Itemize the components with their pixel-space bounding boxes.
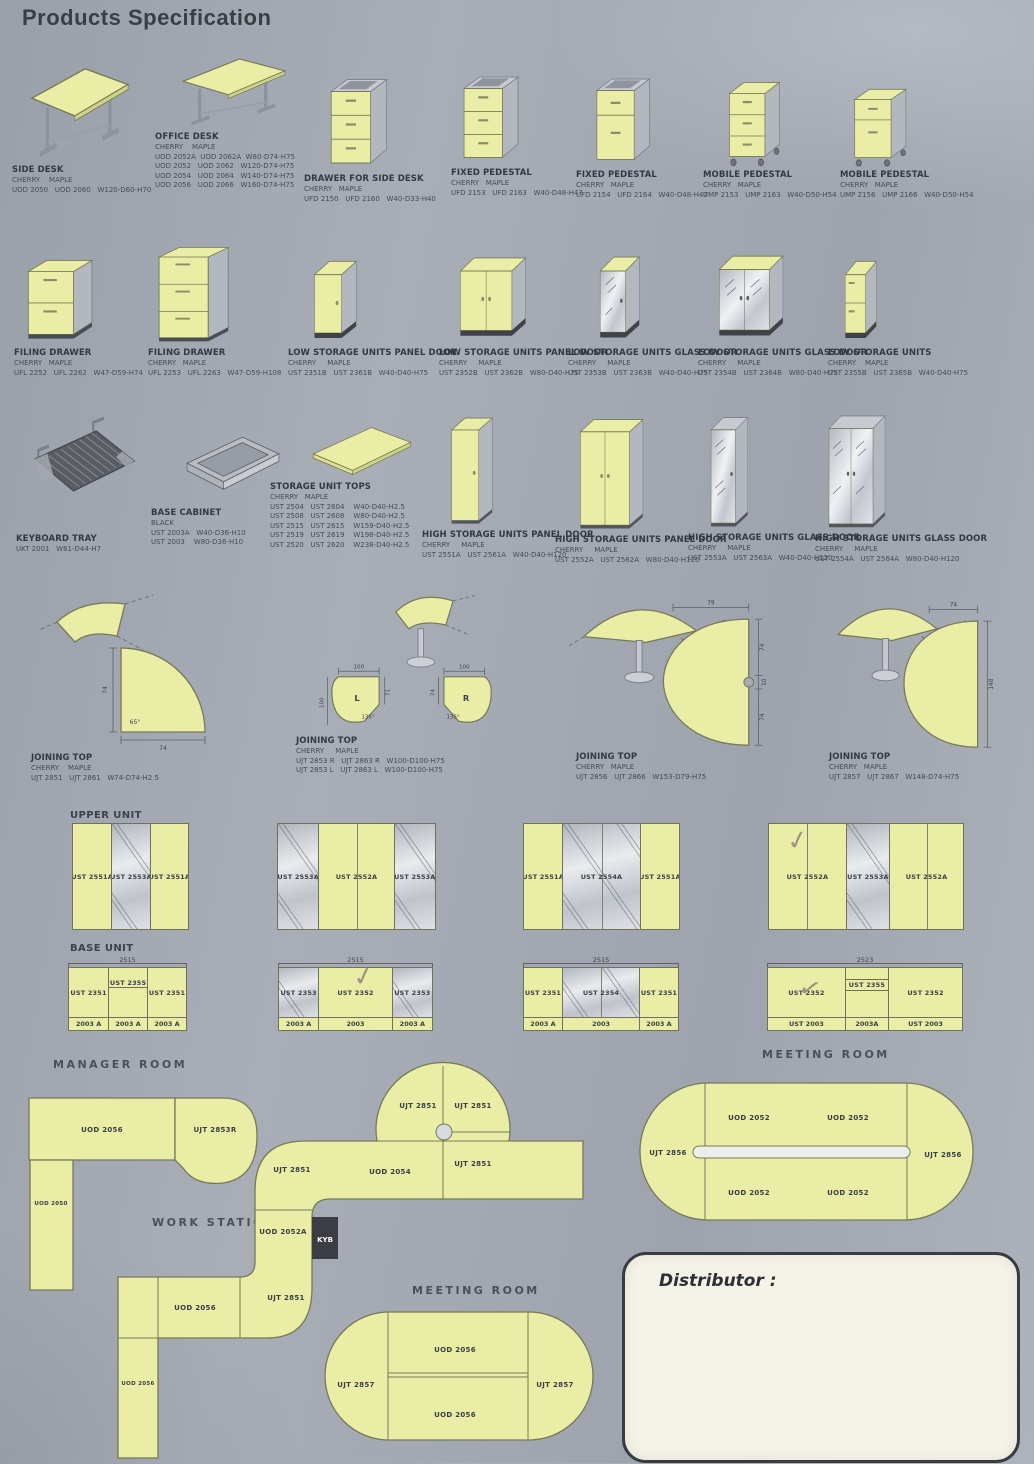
low-storage-glass-door-illustration <box>596 243 654 348</box>
desk-label: UOD 2052 <box>827 1114 869 1122</box>
handwritten-checkmark: ✓ <box>795 972 823 1006</box>
high-storage-panel-door-illustration <box>446 403 508 530</box>
dim-label: 100 <box>459 664 470 670</box>
product-name: KEYBOARD TRAY <box>16 534 166 545</box>
base-cabinet-door: UST 2351 <box>148 968 186 1017</box>
cabinet-glass-double-door: UST 2554A <box>563 824 641 929</box>
product-card-storage-unit-tops: STORAGE UNIT TOPS CHERRY MAPLE UST 2504 … <box>270 416 422 550</box>
product-finishes: CHERRY MAPLE <box>576 181 696 191</box>
product-codes: UST 2354B UST 2364B W80-D40-H75 <box>698 369 846 379</box>
joining-top-label: UJT 2856 <box>924 1151 961 1159</box>
product-name: FILING DRAWER <box>14 348 154 359</box>
handwritten-checkmark: ✓ <box>785 824 813 858</box>
product-card-fixed-pedestal-2: FIXED PEDESTAL CHERRY MAPLE UFD 2154 UFD… <box>576 64 696 200</box>
meeting-room-2-layout: UJT 2857 UOD 2056 UOD 2056 UJT 2857 <box>320 1300 600 1455</box>
joining-top-label: UJT 2851 <box>454 1102 491 1110</box>
desk-label: UOD 2052 <box>728 1189 770 1197</box>
product-card-mobile-pedestal-2: MOBILE PEDESTAL CHERRY MAPLE UMP 2156 UM… <box>840 76 962 200</box>
plinth-label: 2003 <box>563 1018 640 1030</box>
dim-label: 74 <box>431 689 437 697</box>
product-card-fixed-pedestal-1: FIXED PEDESTAL CHERRY MAPLE UFD 2153 UFD… <box>451 62 569 198</box>
product-codes: UJT 2851 UJT 2861 W74-D74-H2.5 <box>31 774 266 784</box>
plinth-label: 2003 A <box>69 1018 109 1030</box>
filing-drawer-illustration <box>150 238 250 348</box>
product-name: JOINING TOP <box>829 752 1029 763</box>
left-top-letter: L <box>354 693 360 703</box>
base-unit-panel-4: 2523 ✓ UST 2352 UST 2355 UST 2352 UST 20… <box>767 956 963 1031</box>
product-finishes: CHERRY MAPLE <box>703 181 821 191</box>
fixed-pedestal-illustration <box>590 64 666 170</box>
product-card-joining-top-4: 74 148 JOINING TOP CHERRY MAPLE UJT 2857… <box>829 592 1029 782</box>
width-dimension: 2523 <box>767 956 963 967</box>
product-codes: UST 2351B UST 2361B W40-D40-H75 <box>288 369 430 379</box>
base-unit-title: BASE UNIT <box>70 943 134 954</box>
product-finishes: CHERRY MAPLE <box>688 544 816 554</box>
side-desk-illustration <box>28 57 132 165</box>
product-name: FILING DRAWER <box>148 348 280 359</box>
product-codes: UMP 2156 UMP 2166 W40-D50-H54 <box>840 191 962 201</box>
product-name: LOW STORAGE UNITS PANEL DOOR <box>439 348 587 359</box>
angle-label: 135° <box>446 714 460 720</box>
product-finishes: CHERRY MAPLE <box>296 747 536 757</box>
cabinet-double-door: UST 2552A <box>890 824 963 929</box>
product-codes: UST 2551A UST 2561A W40-D40-H120 <box>422 551 554 561</box>
product-name: DRAWER FOR SIDE DESK <box>304 174 432 185</box>
upper-unit-title: UPPER UNIT <box>70 810 142 821</box>
base-cabinet-door: UST 2351 <box>640 968 678 1017</box>
base-cabinet-door: UST 2351 <box>69 968 109 1017</box>
product-name: LOW STORAGE UNITS GLASS DOOR <box>698 348 846 359</box>
product-codes: UST 2520 UST 2620 W238-D40-H2.5 <box>270 541 422 551</box>
joining-top-label: UJT 2851 <box>273 1166 310 1174</box>
fixed-pedestal-illustration <box>457 62 535 168</box>
plinth-label: 2003 <box>319 1018 393 1030</box>
product-name: HIGH STORAGE UNITS PANEL DOOR <box>422 530 554 541</box>
product-name: HIGH STORAGE UNITS GLASS DOOR <box>688 533 816 544</box>
product-name: FIXED PEDESTAL <box>451 168 569 179</box>
office-desk-illustration <box>179 50 289 132</box>
dim-label: 79 <box>707 601 715 607</box>
product-codes: UOD 2056 UOD 2066 W160-D74-H75 <box>155 181 313 191</box>
joining-top-label: UJT 2856 <box>649 1149 686 1157</box>
cabinet-door: UST 2551A <box>151 824 188 929</box>
product-codes: UST 2508 UST 2608 W80-D40-H2.5 <box>270 512 422 522</box>
desk-label: UOD 2056 <box>121 1381 154 1387</box>
upper-unit-panel-2: UST 2553A UST 2552A UST 2553A <box>277 823 436 930</box>
product-finishes: CHERRY MAPLE <box>828 359 948 369</box>
product-codes: UST 2353B UST 2363B W40-D40-H75 <box>568 369 708 379</box>
base-cabinet-glass-door: UST 2353 <box>279 968 319 1017</box>
cabinet-double-door: UST 2552A <box>319 824 394 929</box>
product-codes: UST 2552A UST 2562A W80-D40-H120 <box>555 556 689 566</box>
product-name: JOINING TOP <box>576 752 811 763</box>
product-codes: UST 2553A UST 2563A W40-D40-H120 <box>688 554 816 564</box>
high-storage-glass-door-illustration <box>706 402 762 533</box>
product-name: LOW STORAGE UNITS PANEL DOOR <box>288 348 430 359</box>
product-name: SIDE DESK <box>12 165 152 176</box>
base-cabinet-door: UST 2351 <box>524 968 563 1017</box>
low-storage-panel-door-illustration <box>457 243 537 348</box>
product-name: LOW STORAGE UNITS GLASS DOOR <box>568 348 708 359</box>
joining-top-label: UJT 2857 <box>337 1381 374 1389</box>
low-storage-glass-door-illustration <box>716 241 794 348</box>
base-cabinet-door: UST 2352 <box>889 968 962 1017</box>
product-codes: UST 2504 UST 2604 W40-D40-H2.5 <box>270 503 422 513</box>
meeting-room-2-title: MEETING ROOM <box>412 1284 540 1297</box>
product-codes: UOD 2052A UOD 2062A W80-D74-H75 <box>155 153 313 163</box>
product-finishes: CHERRY MAPLE <box>840 181 962 191</box>
product-finishes: CHERRY MAPLE <box>815 545 955 555</box>
dim-label: 74 <box>760 643 766 651</box>
desk-label: UOD 2052 <box>728 1114 770 1122</box>
product-card-side-desk: SIDE DESK CHERRY MAPLE UOD 2050 UOD 2060… <box>12 57 152 195</box>
plinth-label: 2003 A <box>640 1018 678 1030</box>
product-finishes: CHERRY MAPLE <box>304 185 432 195</box>
product-name: OFFICE DESK <box>155 132 313 143</box>
product-codes: UST 2352B UST 2362B W80-D40-H75 <box>439 369 587 379</box>
dim-label: 10 <box>762 678 768 686</box>
catalog-page: { "page": {"title": "Products Specificat… <box>0 0 1034 1463</box>
distributor-label: Distributor : <box>659 1271 777 1291</box>
base-cabinet-door: ✓ UST 2352 <box>319 968 393 1017</box>
product-card-joining-top-1: 65° 74 74 JOINING TOP CHERRY MAPLE UJT 2… <box>31 590 266 783</box>
product-finishes: CHERRY MAPLE <box>568 359 708 369</box>
base-unit-panel-1: 2515 UST 2351 UST 2355 UST 2351 2003 A 2… <box>68 956 187 1031</box>
product-name: JOINING TOP <box>296 736 536 747</box>
high-storage-glass-door-illustration <box>825 400 895 534</box>
base-cabinet-glass-door: UST 2353 <box>393 968 432 1017</box>
product-card-high-storage-glass-1: HIGH STORAGE UNITS GLASS DOOR CHERRY MAP… <box>688 402 816 563</box>
product-card-filing-drawer-2: FILING DRAWER CHERRY MAPLE UFL 2253 UFL … <box>148 238 280 378</box>
product-finishes: CHERRY MAPLE <box>148 359 280 369</box>
joining-top-label: UJT 2857 <box>536 1381 573 1389</box>
keyboard-label: KYB <box>317 1236 333 1244</box>
product-finishes: CHERRY MAPLE <box>155 143 313 153</box>
width-dimension: 2515 <box>278 956 433 967</box>
mobile-pedestal-illustration <box>848 76 922 170</box>
dim-label: 74 <box>950 603 958 609</box>
product-name: JOINING TOP <box>31 753 266 764</box>
product-name: HIGH STORAGE UNITS GLASS DOOR <box>815 534 955 545</box>
product-card-drawer-for-side-desk: DRAWER FOR SIDE DESK CHERRY MAPLE UFD 21… <box>304 64 432 204</box>
product-name: STORAGE UNIT TOPS <box>270 482 422 493</box>
drawer-pedestal-illustration <box>324 64 404 174</box>
product-card-high-storage-panel-2: HIGH STORAGE UNITS PANEL DOOR CHERRY MAP… <box>555 404 689 565</box>
product-card-low-storage-panel-2: LOW STORAGE UNITS PANEL DOOR CHERRY MAPL… <box>439 243 587 378</box>
return-desk-label: UOD 2050 <box>34 1201 67 1207</box>
product-card-keyboard-tray: KEYBOARD TRAY UKT 2001 W61-D44-H7 <box>16 416 166 555</box>
joining-top-label: UJT 2851 <box>399 1102 436 1110</box>
product-name: FIXED PEDESTAL <box>576 170 696 181</box>
product-finishes: CHERRY MAPLE <box>270 493 422 503</box>
upper-unit-panel-3: UST 2551A UST 2554A UST 2551A <box>523 823 680 930</box>
base-unit-panel-2: 2515 UST 2353 ✓ UST 2352 UST 2353 2003 A… <box>278 956 433 1031</box>
base-cabinet-door: UST 2355 <box>109 968 148 1017</box>
meeting-room-1-layout: UJT 2856 UOD 2052 UOD 2052 UOD 2052 UOD … <box>635 1076 1030 1226</box>
cabinet-glass-door: UST 2553A <box>847 824 890 929</box>
filing-drawer-illustration <box>20 246 112 348</box>
product-codes: UJT 2853 L UJT 2863 L W100-D100-H75 <box>296 766 536 776</box>
product-codes: UST 2554A UST 2564A W80-D40-H120 <box>815 555 955 565</box>
desk-label: UOD 2056 <box>434 1346 476 1354</box>
product-finishes: CHERRY MAPLE <box>439 359 587 369</box>
plinth-label: 2003 A <box>148 1018 186 1030</box>
plinth-label: 2003 A <box>524 1018 563 1030</box>
product-codes: UKT 2001 W61-D44-H7 <box>16 545 166 555</box>
product-card-joining-top-2: L R 135° 135° 100 100 100 71 74 JOINING … <box>296 588 536 776</box>
product-codes: UOD 2054 UOD 2064 W140-D74-H75 <box>155 172 313 182</box>
product-card-low-storage-panel-1: LOW STORAGE UNITS PANEL DOOR CHERRY MAPL… <box>288 248 430 378</box>
desk-label: UOD 2052A <box>259 1228 307 1236</box>
desk-label: UOD 2056 <box>434 1411 476 1419</box>
product-card-joining-top-3: 79 74 10 74 JOINING TOP CHERRY MAPLE UJT… <box>576 592 811 782</box>
cabinet-glass-door: UST 2553A <box>395 824 435 929</box>
product-codes: UFL 2252 UFL 2262 W47-D59-H74 <box>14 369 154 379</box>
cabinet-door: UST 2551A <box>524 824 563 929</box>
product-codes: UFD 2154 UFD 2164 W40-D48-H47 <box>576 191 696 201</box>
keyboard-tray-illustration <box>20 416 142 534</box>
product-codes: UST 2515 UST 2615 W159-D40-H2.5 <box>270 522 422 532</box>
high-storage-panel-door-illustration <box>576 404 654 535</box>
dim-label: 74 <box>159 745 167 752</box>
product-codes: UOD 2050 UOD 2060 W120-D60-H70 <box>12 186 152 196</box>
base-unit-panel-3: 2515 UST 2351 UST 2354 UST 2351 2003 A 2… <box>523 956 679 1031</box>
product-card-filing-drawer-1: FILING DRAWER CHERRY MAPLE UFL 2252 UFL … <box>14 246 154 378</box>
product-name: MOBILE PEDESTAL <box>840 170 962 181</box>
product-codes: UFL 2253 UFL 2263 W47-D59-H108 <box>148 369 280 379</box>
cabinet-door: UST 2551A <box>641 824 679 929</box>
joining-top-diagram: L R 135° 135° 100 100 100 71 74 <box>296 588 528 736</box>
upper-unit-panel-1: UST 2551A UST 2553A UST 2551A <box>72 823 189 930</box>
product-finishes: CHERRY MAPLE <box>829 763 1029 773</box>
storage-unit-top-illustration <box>308 416 416 482</box>
product-name: HIGH STORAGE UNITS PANEL DOOR <box>555 535 689 546</box>
dim-label: 100 <box>320 697 326 708</box>
desk-label: UOD 2054 <box>369 1168 411 1176</box>
product-name: LOW STORAGE UNITS <box>828 348 948 359</box>
dim-label: 100 <box>354 664 365 670</box>
product-finishes: CHERRY MAPLE <box>422 541 554 551</box>
joining-top-diagram: 79 74 10 74 <box>562 592 790 752</box>
product-card-office-desk: OFFICE DESK CHERRY MAPLE UOD 2052A UOD 2… <box>155 50 313 191</box>
product-card-high-storage-glass-2: HIGH STORAGE UNITS GLASS DOOR CHERRY MAP… <box>815 400 955 564</box>
cabinet-glass-door: UST 2553A <box>278 824 319 929</box>
meeting-room-1-title: MEETING ROOM <box>762 1048 890 1061</box>
cabinet-glass-door: UST 2553A <box>112 824 150 929</box>
plinth-label: 2003 A <box>109 1018 148 1030</box>
product-finishes: CHERRY MAPLE <box>698 359 846 369</box>
product-finishes: CHERRY MAPLE <box>14 359 154 369</box>
product-codes: UOD 2052 UOD 2062 W120-D74-H75 <box>155 162 313 172</box>
product-codes: UJT 2853 R UJT 2863 R W100-D100-H75 <box>296 757 536 767</box>
product-codes: UST 2519 UST 2619 W198-D40-H2.5 <box>270 531 422 541</box>
dim-label: 148 <box>989 678 995 689</box>
right-top-letter: R <box>463 693 470 703</box>
product-finishes: CHERRY MAPLE <box>451 179 569 189</box>
product-codes: UFD 2153 UFD 2163 W40-D48-H47 <box>451 189 569 199</box>
page-title: Products Specification <box>22 5 271 31</box>
base-cabinet-door: ✓ UST 2352 <box>768 968 846 1017</box>
plinth-label: 2003A <box>846 1018 889 1030</box>
low-storage-panel-door-illustration <box>310 248 372 348</box>
product-card-low-storage-glass-1: LOW STORAGE UNITS GLASS DOOR CHERRY MAPL… <box>568 243 708 378</box>
distributor-box: Distributor : <box>622 1252 1020 1463</box>
product-card-low-storage-glass-2: LOW STORAGE UNITS GLASS DOOR CHERRY MAPL… <box>698 241 846 378</box>
plinth-label: 2003 A <box>279 1018 319 1030</box>
cabinet-door: UST 2551A <box>73 824 112 929</box>
product-codes: UJT 2857 UJT 2867 W148-D74-H75 <box>829 773 1029 783</box>
joining-top-label: UJT 2851 <box>454 1160 491 1168</box>
desk-label: UOD 2056 <box>174 1304 216 1312</box>
cable-slot <box>693 1146 910 1158</box>
product-finishes: CHERRY MAPLE <box>12 176 152 186</box>
product-finishes: CHERRY MAPLE <box>576 763 811 773</box>
angle-label: 135° <box>361 714 375 720</box>
mobile-pedestal-illustration <box>723 68 795 170</box>
angle-label: 65° <box>130 719 141 726</box>
low-storage-units-illustration <box>842 248 888 348</box>
product-codes: UJT 2856 UJT 2866 W153-D79-H75 <box>576 773 811 783</box>
product-card-mobile-pedestal-1: MOBILE PEDESTAL CHERRY MAPLE UMP 2153 UM… <box>703 68 821 200</box>
product-finishes: CHERRY MAPLE <box>555 546 689 556</box>
desk-label: UOD 2052 <box>827 1189 869 1197</box>
base-cabinet-glass-double-door: UST 2354 <box>563 968 640 1017</box>
product-codes: UST 2355B UST 2365B W40-D40-H75 <box>828 369 948 379</box>
width-dimension: 2515 <box>68 956 187 967</box>
product-card-low-storage-units: LOW STORAGE UNITS CHERRY MAPLE UST 2355B… <box>828 248 948 378</box>
product-codes: UMP 2153 UMP 2163 W40-D50-H54 <box>703 191 821 201</box>
dim-label: 74 <box>102 686 109 694</box>
joining-top-diagram: 74 148 <box>823 592 1015 752</box>
dim-label: 74 <box>760 713 766 721</box>
plinth-label: UST 2003 <box>768 1018 846 1030</box>
joining-top-diagram: 65° 74 74 <box>31 590 256 753</box>
product-finishes: CHERRY MAPLE <box>288 359 430 369</box>
cabinet-double-door: ✓ UST 2552A <box>769 824 847 929</box>
product-card-high-storage-panel-1: HIGH STORAGE UNITS PANEL DOOR CHERRY MAP… <box>422 403 554 560</box>
product-finishes: CHERRY MAPLE <box>31 764 266 774</box>
joining-top-label: UJT 2851 <box>267 1294 304 1302</box>
base-cabinet-drawer: UST 2355 <box>846 968 889 1017</box>
plinth-label: 2003 A <box>393 1018 432 1030</box>
upper-unit-panel-4: ✓ UST 2552A UST 2553A UST 2552A <box>768 823 964 930</box>
width-dimension: 2515 <box>523 956 679 967</box>
product-codes: UFD 2150 UFD 2160 W40-D33-H40 <box>304 195 432 205</box>
plinth-label: UST 2003 <box>889 1018 962 1030</box>
product-name: MOBILE PEDESTAL <box>703 170 821 181</box>
dim-label: 71 <box>385 689 391 697</box>
